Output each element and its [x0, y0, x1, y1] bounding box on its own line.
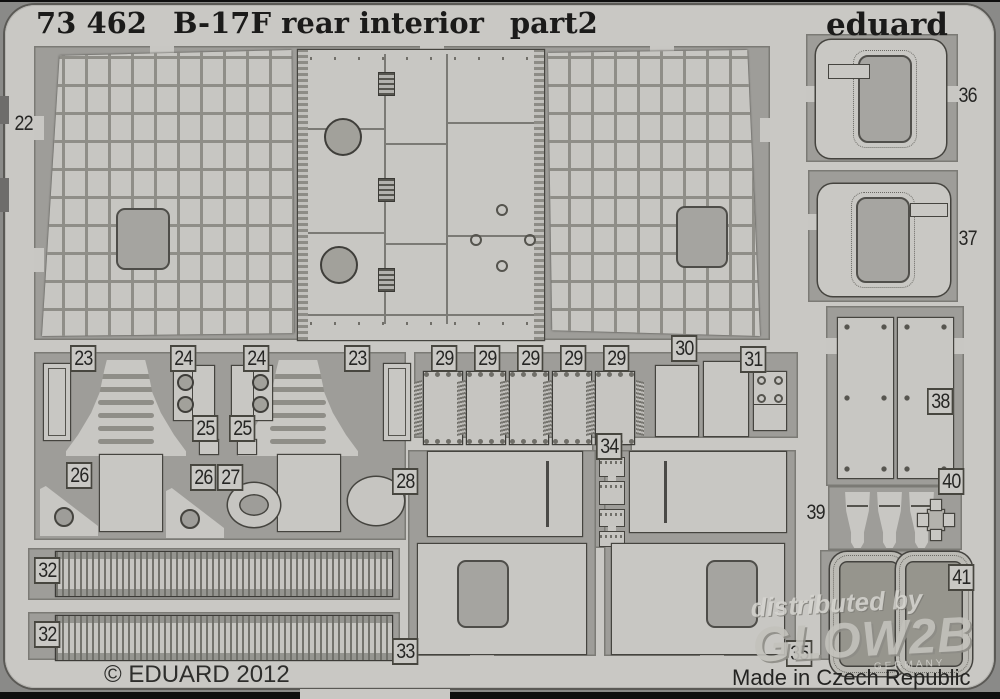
cross-center	[928, 510, 944, 530]
product-photo-pe-fret: 2223242423252526262728292929292930313232…	[0, 0, 1000, 699]
part-label-23: 23	[344, 345, 371, 372]
port-circle	[320, 246, 358, 284]
part-32-ammo-belt	[56, 552, 392, 596]
edge-notch	[0, 96, 9, 124]
seat-slot	[98, 387, 154, 392]
part-label-28: 28	[392, 468, 419, 495]
lightening-hole	[54, 507, 74, 527]
part-label-26: 26	[66, 462, 93, 489]
door-placard	[910, 203, 948, 217]
part-23-left	[44, 364, 70, 440]
inner-line	[389, 369, 405, 435]
part-label-37: 37	[956, 227, 979, 250]
part-label-39: 39	[804, 501, 827, 524]
hinge-detail	[378, 178, 395, 202]
door-placard	[828, 64, 870, 79]
hole-circle	[252, 396, 269, 413]
part-31-bracket	[754, 372, 786, 430]
seat-slot	[270, 387, 326, 392]
small-hole	[470, 234, 482, 246]
part-label-29: 29	[431, 345, 458, 372]
texture-strip	[298, 50, 308, 340]
hatch-right	[676, 206, 728, 268]
seat-pan-left	[100, 455, 162, 531]
part-label-29: 29	[603, 345, 630, 372]
seat-slot	[270, 374, 326, 379]
part-24-left	[174, 366, 214, 420]
panel-line	[546, 461, 549, 527]
part-label-29: 29	[474, 345, 501, 372]
rivet	[774, 376, 783, 385]
cross-stub	[944, 514, 954, 526]
lightening-hole	[180, 509, 200, 529]
bulkhead-panel-center	[298, 50, 544, 340]
edge-notch	[0, 178, 9, 212]
page-title: B-17F rear interior	[173, 6, 484, 40]
hole-circle	[252, 374, 269, 391]
rivet-row	[310, 57, 532, 60]
panel-line	[664, 461, 667, 523]
part-label-25: 25	[229, 415, 256, 442]
part-35-upper-panel	[630, 452, 786, 532]
hinge-detail	[378, 268, 395, 292]
part-label-32: 32	[34, 621, 61, 648]
part-label-40: 40	[938, 468, 965, 495]
part-35-lower-panel	[612, 544, 784, 654]
seat-pan-right	[278, 455, 340, 531]
part-25-right	[238, 440, 256, 454]
part-33-lower-panel	[418, 544, 586, 654]
panel-line	[386, 143, 446, 145]
part-34-segment	[600, 482, 624, 504]
part-label-34: 34	[596, 433, 623, 460]
part-label-29: 29	[517, 345, 544, 372]
part-40-cross	[916, 498, 956, 542]
seat-slot	[98, 426, 154, 431]
part-label-24: 24	[243, 345, 270, 372]
panel-line	[448, 122, 534, 124]
door-window	[856, 197, 910, 283]
part-34-segment	[600, 510, 624, 526]
title-bar: 73 462 B-17F rear interior part2	[36, 6, 598, 40]
port-circle	[324, 118, 362, 156]
part-23-right	[384, 364, 410, 440]
hole-circle	[177, 396, 194, 413]
cross-stub	[918, 514, 928, 526]
catalog-number: 73 462	[36, 6, 147, 40]
brand-logo: eduard	[826, 7, 948, 43]
part-30-plate-b	[704, 362, 748, 436]
floor-grid-panel-left	[42, 50, 294, 336]
part-label-27: 27	[217, 464, 244, 491]
part-32-ammo-belt	[56, 616, 392, 660]
seat-slot	[270, 400, 326, 405]
edge-notch	[300, 689, 450, 699]
floor-grid-panel-right	[548, 50, 760, 336]
inner-line	[49, 369, 65, 435]
small-hole	[524, 234, 536, 246]
part-30-plate-a	[656, 366, 698, 436]
part-label-36: 36	[956, 84, 979, 107]
panel-line	[308, 232, 384, 234]
panel-line	[754, 404, 786, 405]
hole-circle	[177, 374, 194, 391]
seat-slot	[98, 400, 154, 405]
panel-line	[308, 314, 534, 316]
part-label-29: 29	[560, 345, 587, 372]
part-33-upper-panel	[428, 452, 582, 536]
part-label-31: 31	[740, 346, 767, 373]
rivet	[757, 376, 766, 385]
texture-strip	[534, 50, 544, 340]
part-label-30: 30	[671, 335, 698, 362]
rivet-row	[310, 322, 532, 325]
part-suffix: part2	[510, 6, 598, 40]
part-label-22: 22	[12, 112, 35, 135]
part-label-24: 24	[170, 345, 197, 372]
part-label-25: 25	[192, 415, 219, 442]
part-label-35: 35	[786, 640, 813, 667]
grid-mesh	[42, 50, 294, 336]
part-37-door	[818, 184, 950, 296]
copyright-text: © EDUARD 2012	[104, 661, 290, 689]
small-hole	[496, 204, 508, 216]
part-label-38: 38	[927, 388, 954, 415]
seat-slot	[98, 439, 154, 444]
part-36-door	[816, 40, 946, 158]
panel-window	[706, 560, 758, 628]
rivet	[774, 394, 783, 403]
part-34-segment	[600, 458, 624, 476]
rivet	[757, 394, 766, 403]
made-in-text: Made in Czech Republic	[732, 665, 970, 691]
part-24-right	[232, 366, 272, 420]
part-38-plate-a	[838, 318, 893, 478]
panel-line	[446, 54, 448, 324]
panel-line	[448, 235, 534, 237]
part-label-32: 32	[34, 557, 61, 584]
part-label-41: 41	[948, 564, 975, 591]
part-label-23: 23	[70, 345, 97, 372]
seat-slot	[98, 413, 154, 418]
hinge-detail	[378, 72, 395, 96]
part-label-33: 33	[392, 638, 419, 665]
panel-window	[457, 560, 509, 628]
part-25-left	[200, 440, 218, 454]
part-label-26: 26	[190, 464, 217, 491]
small-hole	[496, 260, 508, 272]
seat-slot	[270, 413, 326, 418]
hatch-left	[116, 208, 170, 270]
seat-slot	[98, 374, 154, 379]
seat-slot	[270, 439, 326, 444]
grid-mesh	[548, 50, 760, 336]
cross-stub	[931, 500, 941, 510]
sprue-tab	[760, 118, 770, 142]
cross-stub	[931, 530, 941, 540]
panel-line	[386, 243, 446, 245]
seat-slot	[270, 426, 326, 431]
